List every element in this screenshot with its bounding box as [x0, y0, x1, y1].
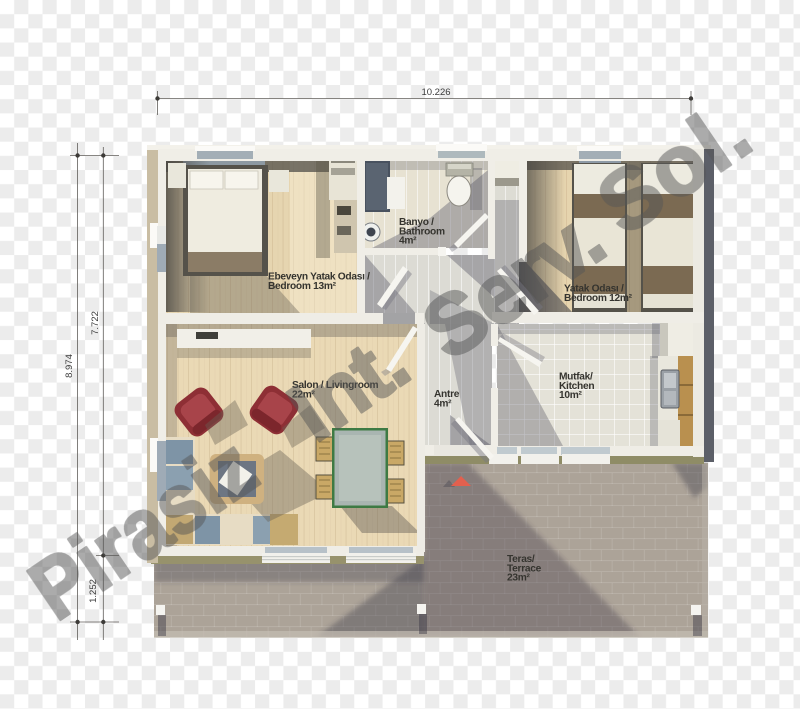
svg-text:7.722: 7.722: [90, 311, 101, 335]
svg-text:10.226: 10.226: [421, 87, 450, 98]
svg-text:8.974: 8.974: [64, 354, 75, 378]
